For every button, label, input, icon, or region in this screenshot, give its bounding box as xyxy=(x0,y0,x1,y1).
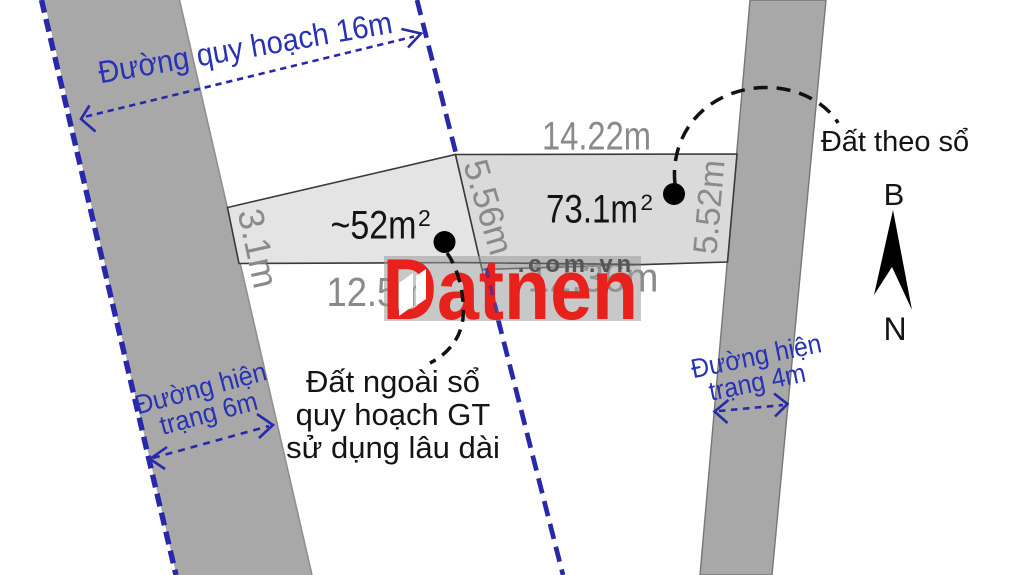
svg-text:B: B xyxy=(884,177,905,212)
svg-text:2: 2 xyxy=(418,205,431,231)
svg-text:73.1m: 73.1m xyxy=(546,188,638,232)
svg-text:quy hoạch GT: quy hoạch GT xyxy=(296,397,491,432)
svg-text:sử dụng lâu dài: sử dụng lâu dài xyxy=(286,430,500,465)
svg-text:14.22m: 14.22m xyxy=(542,115,651,159)
svg-text:~52m: ~52m xyxy=(331,204,417,248)
svg-text:Đất theo sổ: Đất theo sổ xyxy=(821,126,969,158)
svg-text:2: 2 xyxy=(641,190,654,215)
svg-text:N: N xyxy=(883,311,906,347)
svg-text:Đất ngoài sổ: Đất ngoài sổ xyxy=(306,364,480,399)
